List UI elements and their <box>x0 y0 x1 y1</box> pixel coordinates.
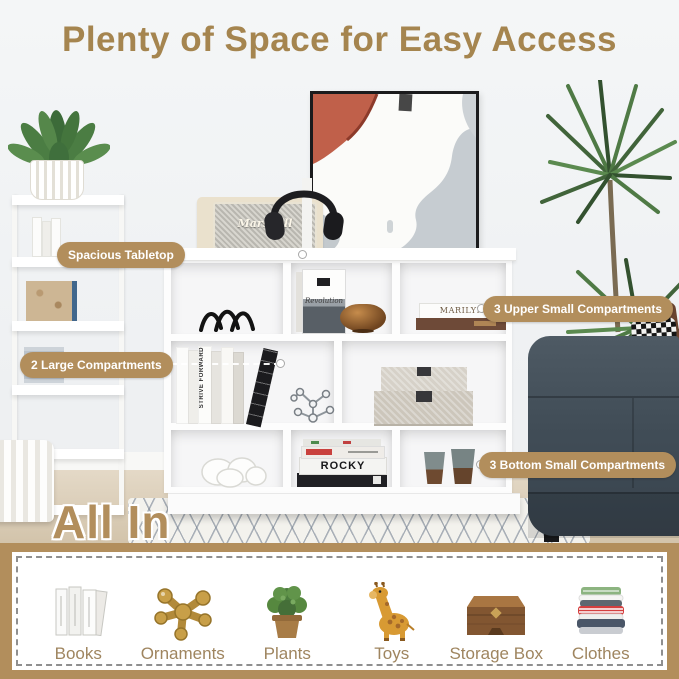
callout-upper-compartments: 3 Upper Small Compartments <box>483 296 673 322</box>
carved-vase <box>0 440 54 522</box>
headphones <box>258 172 350 256</box>
item-clothes: Clothes <box>549 562 654 664</box>
bookshelf-plinth <box>168 493 520 514</box>
footer-title: All In <box>52 495 170 549</box>
toys-icon <box>360 582 424 642</box>
item-storage-box: Storage Box <box>444 562 549 664</box>
clothes-icon <box>569 582 633 642</box>
callout-spacious-tabletop: Spacious Tabletop <box>57 242 185 268</box>
revolution-title: Revolution <box>303 297 345 305</box>
bronze-bowl-base <box>352 329 374 333</box>
page-title: Plenty of Space for Easy Access <box>0 20 679 60</box>
molecule-ornament <box>290 384 336 424</box>
fluted-pot <box>30 160 84 200</box>
item-label: Books <box>55 644 102 664</box>
storage-box-icon <box>461 582 531 642</box>
record-sleeve <box>26 281 77 321</box>
storage-box-small <box>381 367 467 393</box>
item-plants: Plants <box>235 562 340 664</box>
item-books: Books <box>26 562 131 664</box>
black-book-flat <box>297 473 387 487</box>
plants-icon <box>255 582 319 642</box>
revolution-book: Revolution <box>302 269 346 334</box>
sofa <box>528 336 679 536</box>
rocky-book: ROCKY <box>299 457 387 475</box>
books-icon <box>46 582 110 642</box>
glass-cup-1 <box>424 452 445 484</box>
item-label: Plants <box>264 644 311 664</box>
white-ornament <box>196 450 270 488</box>
callout-bottom-compartments: 3 Bottom Small Compartments <box>479 452 676 478</box>
strive-forward-book: STRIVE FORWARD <box>198 346 212 424</box>
antler-ornament <box>196 299 260 333</box>
footer-panel: Books Ornaments <box>12 552 667 670</box>
glass-cup-2 <box>451 449 475 484</box>
product-marketing-image: Plenty of Space for Easy Access <box>0 0 679 679</box>
item-label: Clothes <box>572 644 630 664</box>
callout-large-compartments: 2 Large Compartments <box>20 352 173 378</box>
item-toys: Toys <box>340 562 445 664</box>
storage-box-large <box>374 391 473 426</box>
item-label: Ornaments <box>141 644 225 664</box>
item-ornaments: Ornaments <box>131 562 236 664</box>
bronze-bowl <box>340 304 386 331</box>
storage-items-row: Books Ornaments <box>26 562 653 664</box>
book-flat <box>301 446 385 459</box>
item-label: Storage Box <box>449 644 543 664</box>
item-label: Toys <box>374 644 409 664</box>
ornaments-icon <box>151 582 215 642</box>
book-flat-thin <box>303 439 381 446</box>
